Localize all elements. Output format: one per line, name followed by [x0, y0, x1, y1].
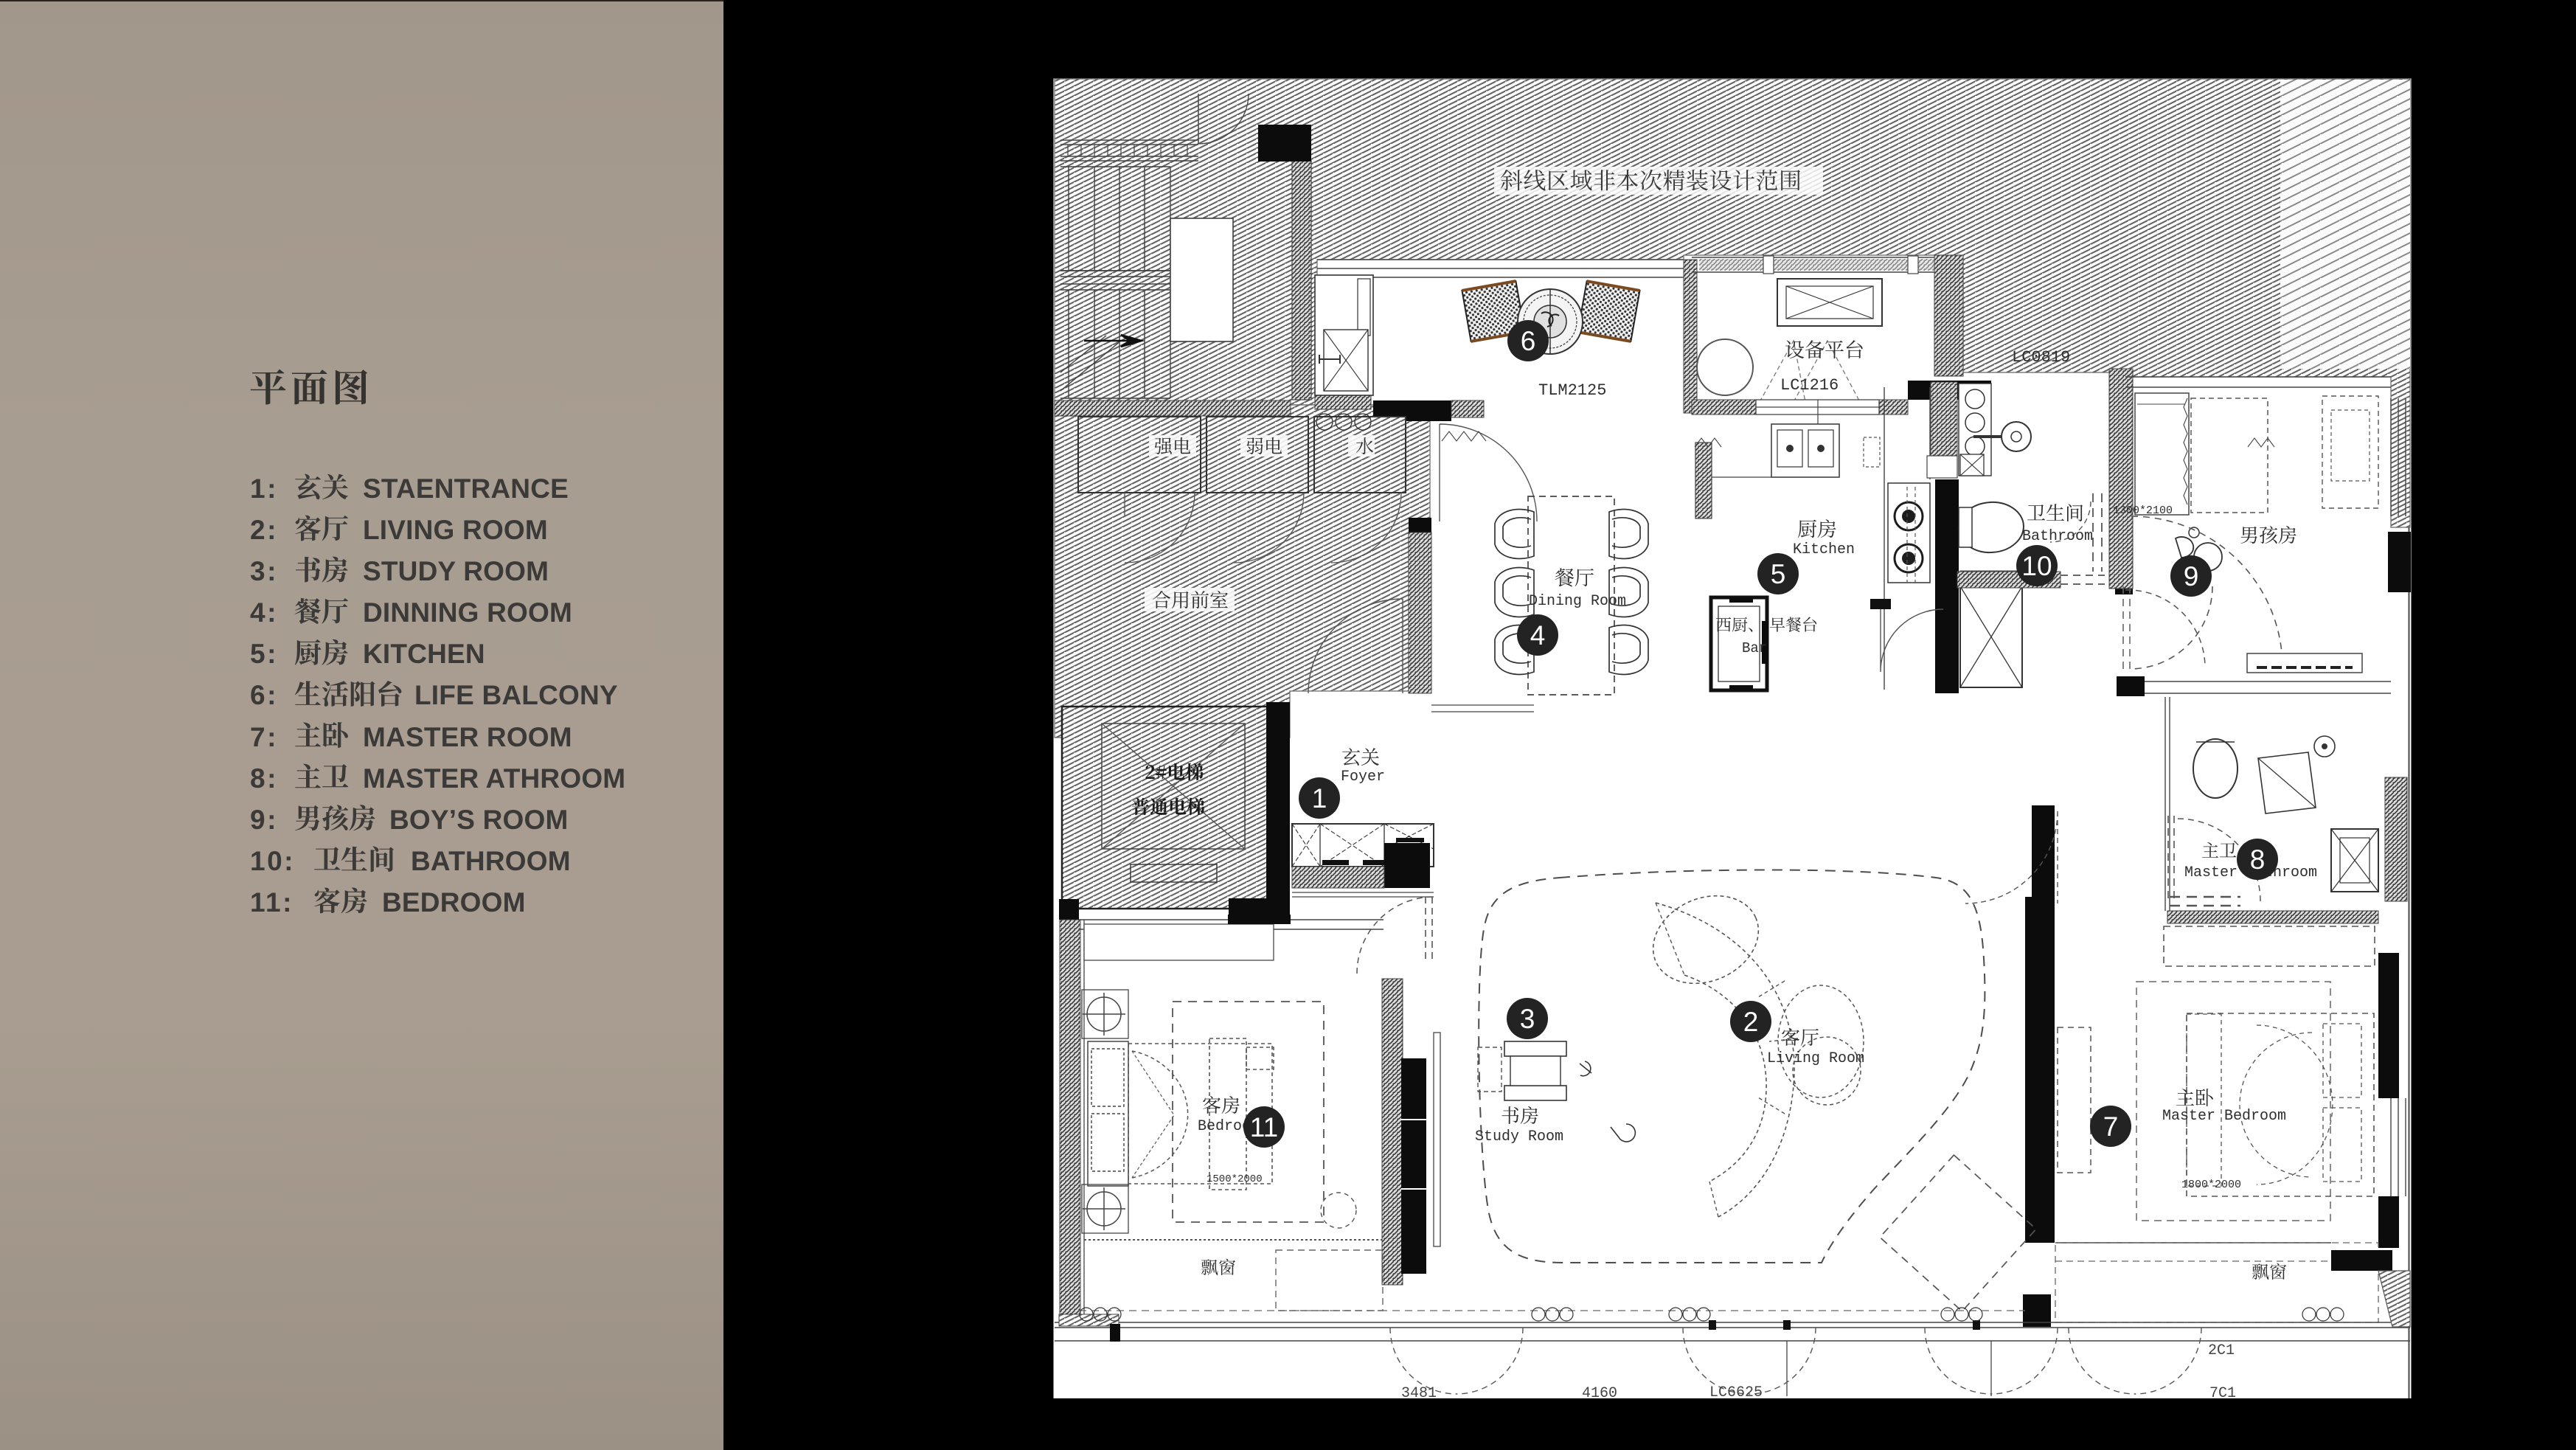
svg-text:Kitchen: Kitchen [1793, 541, 1855, 558]
svg-text:11: 11 [1250, 1112, 1278, 1142]
svg-text:Study Room: Study Room [1475, 1128, 1563, 1145]
svg-text:7: 7 [2103, 1111, 2119, 1142]
svg-text:3: 3 [1520, 1004, 1535, 1034]
svg-text:Master Bedroom: Master Bedroom [2162, 1108, 2286, 1125]
svg-text:1300*2100: 1300*2100 [2113, 504, 2173, 517]
svg-text:2: 2 [1743, 1007, 1759, 1037]
svg-text:4: 4 [1530, 620, 1546, 651]
svg-text:1: 1 [1312, 783, 1327, 814]
svg-text:Dining Room: Dining Room [1529, 593, 1626, 610]
svg-text:1800*2000: 1800*2000 [2181, 1179, 2241, 1191]
svg-text:10: 10 [2021, 551, 2052, 581]
svg-text:LC1216: LC1216 [1780, 376, 1839, 395]
svg-text:2C1: 2C1 [2208, 1342, 2235, 1359]
svg-text:Bathroom: Bathroom [2022, 528, 2093, 545]
svg-text:6: 6 [1521, 326, 1536, 356]
svg-text:5: 5 [1771, 559, 1786, 589]
svg-text:LC0819: LC0819 [2012, 348, 2070, 367]
svg-text:Living Room: Living Room [1767, 1050, 1864, 1067]
svg-text:Foyer: Foyer [1341, 769, 1385, 785]
svg-text:8: 8 [2250, 844, 2266, 875]
svg-text:1500*2000: 1500*2000 [1207, 1173, 1263, 1185]
svg-text:9: 9 [2184, 561, 2199, 592]
svg-text:Bar: Bar [1742, 640, 1767, 656]
svg-text:TLM2125: TLM2125 [1538, 381, 1606, 400]
